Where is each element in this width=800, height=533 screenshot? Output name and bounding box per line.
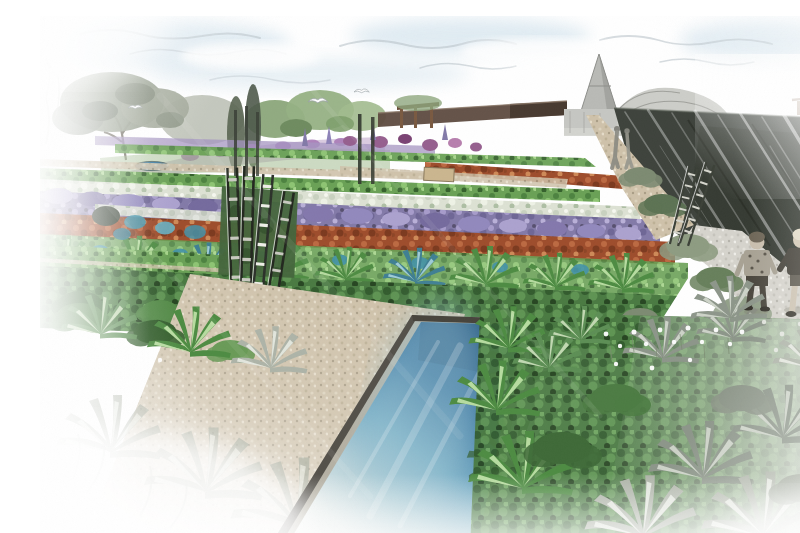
- vignette: [40, 16, 800, 533]
- garden-rendering: Watercolor-style landscape rendering of …: [40, 16, 800, 533]
- rendering-svg: [40, 16, 800, 533]
